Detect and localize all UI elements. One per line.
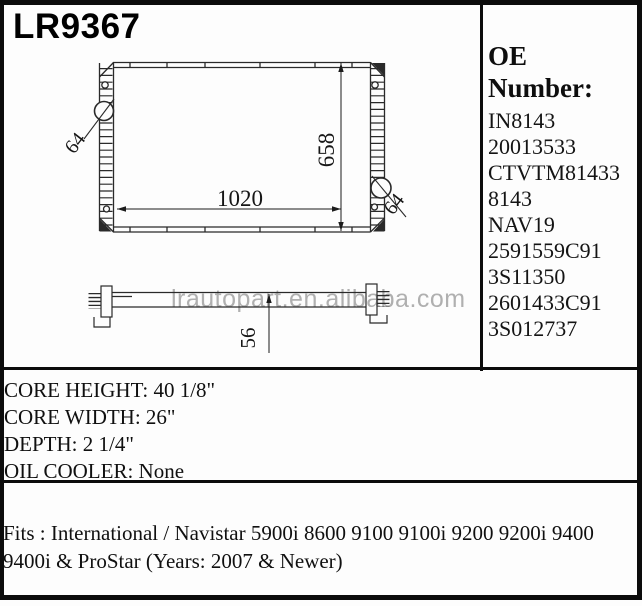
spec-oil-cooler: OIL COOLER: None: [4, 458, 474, 485]
outlet-leader-line: [372, 176, 406, 217]
border-left: [0, 0, 4, 600]
inlet-leader-line: [84, 99, 114, 139]
oe-heading: OE Number:: [488, 40, 634, 104]
oe-number: 8143: [488, 186, 634, 212]
depth-dimension: 56: [236, 328, 260, 349]
fitment-line-1: Fits : International / Navistar 5900i 86…: [3, 519, 633, 547]
outlet-port: [371, 178, 391, 198]
oe-number: NAV19: [488, 212, 634, 238]
right-tank: [371, 63, 385, 233]
core-height-dimension: 658: [314, 133, 339, 168]
divider-oe-panel: [480, 0, 483, 371]
fitment: Fits : International / Navistar 5900i 86…: [3, 519, 633, 575]
border-bottom: [0, 595, 642, 600]
fitment-line-2: 9400i & ProStar (Years: 2007 & Newer): [3, 547, 633, 575]
specifications: CORE HEIGHT: 40 1/8" CORE WIDTH: 26" DEP…: [4, 377, 474, 485]
border-top: [0, 0, 642, 5]
oe-number: 20013533: [488, 134, 634, 160]
inlet-port: [95, 102, 114, 121]
oe-number: CTVTM81433: [488, 160, 634, 186]
oe-panel: OE Number: IN8143 20013533 CTVTM81433 81…: [488, 40, 634, 342]
oe-number: 3S012737: [488, 316, 634, 342]
front-view: [84, 62, 406, 233]
spec-core-width: CORE WIDTH: 26": [4, 404, 474, 431]
spec-core-height: CORE HEIGHT: 40 1/8": [4, 377, 474, 404]
spec-depth: DEPTH: 2 1/4": [4, 431, 474, 458]
oe-number: IN8143: [488, 108, 634, 134]
oe-number: 2601433C91: [488, 290, 634, 316]
product-spec-image: LR9367 OE Number: IN8143 20013533 CTVTM8…: [0, 0, 642, 606]
dimension-arrows: [117, 63, 344, 303]
divider-specs-top: [0, 367, 642, 370]
border-right: [637, 0, 642, 600]
oe-number: 2591559C91: [488, 238, 634, 264]
dimension-labels: 1020 658 64 64 56: [60, 129, 409, 349]
watermark: lrautopart.en.alibaba.com: [171, 285, 466, 313]
outlet-diameter-dimension: 64: [379, 190, 409, 219]
core-width-dimension: 1020: [217, 186, 263, 211]
oe-number: 3S11350: [488, 264, 634, 290]
inlet-diameter-dimension: 64: [60, 129, 90, 158]
left-tank: [100, 63, 114, 233]
part-number: LR9367: [13, 8, 141, 45]
